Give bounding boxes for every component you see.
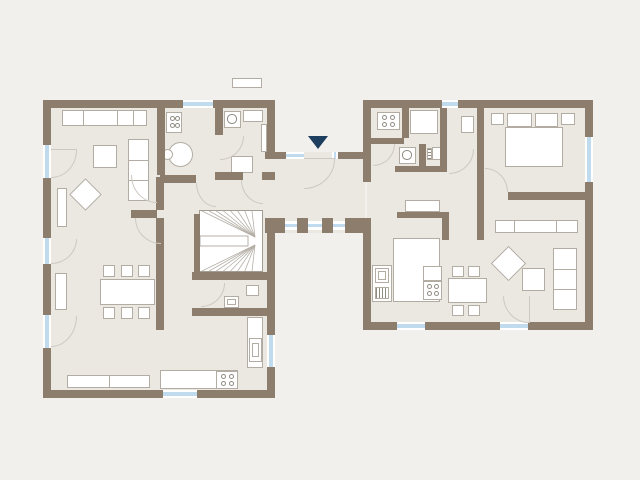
wall-rb-top	[363, 100, 593, 108]
living-radiator	[57, 188, 67, 227]
wall-bath-west	[440, 108, 447, 172]
hwr-counter	[410, 110, 438, 134]
corridor-window2	[308, 221, 322, 230]
wc-sink	[246, 285, 259, 296]
window-lb-bottom	[163, 390, 197, 398]
wall-kitchen1-divider	[157, 108, 165, 175]
wall-utility-divider	[215, 108, 223, 135]
wall-corridor-pillar4	[345, 218, 365, 233]
wall-wc-south	[192, 308, 275, 316]
living-coffee-table	[93, 145, 117, 168]
wall-hall2-east	[442, 212, 449, 240]
roof-dormer	[232, 78, 262, 88]
dining2-table	[448, 278, 487, 303]
corridor-window1	[285, 221, 297, 230]
utility-washing-machine	[224, 111, 241, 128]
hall-bench	[405, 200, 440, 212]
bedroom-pillow-left	[507, 113, 532, 127]
window-lb-left2	[43, 238, 51, 264]
wall-lb-right-upper	[267, 108, 275, 152]
dining2-chair	[452, 266, 464, 277]
wall-corridor-pillar3	[322, 218, 333, 233]
wall-hwr-h2	[395, 166, 440, 172]
bath-shower	[461, 116, 474, 133]
kitchen3-fridge	[375, 268, 389, 283]
living-sofa	[62, 110, 147, 126]
wall-lb-bottom	[43, 390, 275, 398]
utility-counter	[243, 110, 263, 122]
wall-spine-upper	[156, 177, 164, 210]
entrance-sidelight-left	[286, 152, 304, 159]
wall-rb-left-upper	[363, 100, 371, 182]
dining2-chair	[468, 266, 480, 277]
wc-toilet	[224, 296, 239, 308]
kitchen3-stove	[377, 112, 400, 130]
window-lb-left3	[43, 315, 51, 348]
dining-chair	[138, 265, 150, 277]
wall-stair-south	[192, 272, 275, 280]
wall-rb-right	[585, 100, 593, 330]
wall-utility-south-a	[215, 172, 243, 180]
dining-chair	[103, 265, 115, 277]
wall-corridor-pillar1	[265, 218, 285, 233]
dining-table	[100, 279, 155, 305]
window-rb-bottom	[397, 322, 425, 330]
window-lb-right	[267, 335, 275, 367]
dining-shelf	[55, 273, 67, 310]
floor-plan-canvas	[0, 0, 640, 480]
wall-corridor-pillar2	[297, 218, 308, 233]
living2-wardrobe	[495, 220, 578, 233]
wall-lb-top	[43, 100, 275, 108]
dining-sideboard	[67, 375, 150, 388]
dining-chair	[103, 307, 115, 319]
kitchen3-cooktop	[423, 281, 442, 300]
bedroom-nightstand-right	[561, 113, 575, 125]
kitchen3-stove-panel	[423, 266, 442, 281]
hwr-washing-machine	[399, 147, 416, 164]
wall-hall-north	[160, 175, 196, 183]
door-rb-bottom-glass	[500, 322, 528, 330]
kitchen2-stove	[216, 371, 238, 389]
wall-rb-spine	[477, 108, 484, 240]
wall-hwr-divider2	[419, 144, 426, 166]
staircase	[199, 210, 263, 272]
wall-living-dining	[131, 210, 157, 218]
wall-rb-left-lower	[363, 218, 371, 330]
window-lb-top	[183, 100, 213, 108]
utility-table	[231, 156, 253, 173]
entrance-arrow-icon	[308, 136, 328, 149]
wall-bedroom-south	[508, 192, 593, 200]
dining2-chair	[452, 305, 464, 316]
living2-sofa	[553, 248, 577, 310]
corridor-window3	[333, 221, 345, 230]
window-lb-left1	[43, 145, 51, 178]
dining-chair	[121, 307, 133, 319]
wall-corridor-stub-left	[265, 152, 286, 159]
window-rb-right	[585, 137, 593, 182]
bedroom-nightstand-left	[491, 113, 504, 125]
wall-stair-west	[194, 214, 200, 272]
window-rb-top	[442, 100, 458, 108]
bedroom-pillow-right	[535, 113, 558, 127]
wall-corridor-stub-right	[338, 152, 365, 159]
wall-utility-south-b	[262, 172, 275, 180]
bedroom-bed	[505, 127, 563, 167]
wall-hwr-divider1	[402, 108, 409, 138]
kitchen2-sink	[249, 338, 262, 362]
dining2-chair	[468, 305, 480, 316]
door-leaf	[529, 296, 530, 323]
dining-chair	[121, 265, 133, 277]
dining-chair	[138, 307, 150, 319]
kitchen1-stove	[166, 112, 182, 133]
living2-coffee-table	[522, 268, 545, 291]
kitchen3-vent-grille	[375, 287, 389, 299]
